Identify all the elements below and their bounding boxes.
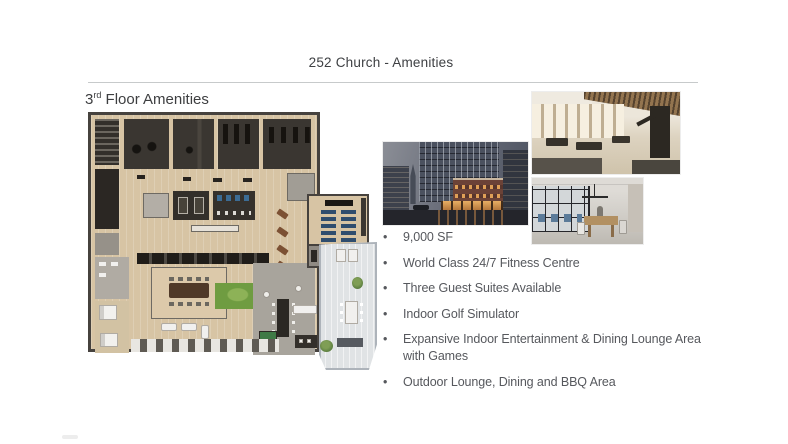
plan-equipment-dot <box>137 175 145 179</box>
bullet-text: Outdoor Lounge, Dining and BBQ Area <box>403 374 616 391</box>
bullet-icon: • <box>383 229 391 246</box>
plan-outdoor-terrace <box>319 242 377 370</box>
plan-outdoor-stools <box>360 303 363 323</box>
plan-guest-bed <box>99 305 117 320</box>
lounge-ceiling-line <box>532 184 643 185</box>
plan-theatre-room <box>307 194 369 246</box>
ext-podium-windows <box>455 194 503 198</box>
ext-car <box>413 205 429 210</box>
plan-kettlebell <box>276 244 288 255</box>
plan-small-room <box>143 193 169 218</box>
list-item: •World Class 24/7 Fitness Centre <box>383 255 703 272</box>
ext-podium-windows <box>455 185 503 189</box>
gym-bench <box>576 142 602 150</box>
plan-dining-chairs <box>169 302 209 306</box>
plan-round-table <box>295 285 302 292</box>
gym-bench <box>546 138 568 146</box>
plan-kettlebell <box>276 226 288 237</box>
amenities-list: •9,000 SF •World Class 24/7 Fitness Cent… <box>383 229 703 399</box>
plan-bar-table <box>277 299 289 337</box>
plan-fixture <box>98 272 107 278</box>
plan-round-table <box>263 291 270 298</box>
slide: 252 Church - Amenities 3rd Floor Ameniti… <box>0 0 788 444</box>
floor-plan-image <box>85 106 387 374</box>
ext-storefront <box>441 201 503 210</box>
plan-equipment-dot <box>243 178 252 182</box>
lounge-blue-chairs <box>538 214 582 222</box>
title-divider <box>88 82 698 83</box>
fitness-centre-photo <box>532 92 680 174</box>
plan-gym-room-4 <box>263 119 311 169</box>
plan-dark-hall <box>95 169 119 229</box>
plan-golf-turf <box>215 283 253 309</box>
plan-kitchen-island <box>293 305 317 314</box>
plan-main-body <box>88 112 320 352</box>
plan-gym-room-3 <box>218 119 259 169</box>
bullet-icon: • <box>383 255 391 272</box>
plan-bbq-station <box>337 338 363 347</box>
plan-dining-chairs <box>169 277 209 281</box>
plan-sofa <box>161 323 177 331</box>
plan-counter <box>191 225 239 232</box>
list-item: •Expansive Indoor Entertainment & Dining… <box>383 331 703 365</box>
bullet-text: Expansive Indoor Entertainment & Dining … <box>403 331 701 348</box>
bullet-icon: • <box>383 280 391 297</box>
lounge-pendant-light <box>582 196 608 198</box>
plan-sofa <box>181 323 197 331</box>
gym-mat <box>632 160 680 174</box>
plan-storage-room <box>95 233 119 255</box>
slide-title: 252 Church - Amenities <box>0 55 762 70</box>
plan-av-wall <box>361 198 366 236</box>
plan-locker-row <box>137 253 269 264</box>
plan-theatre-seats <box>341 210 356 244</box>
plan-bar-stools <box>272 303 275 333</box>
plan-dining-table <box>169 283 209 298</box>
plan-lounge-chair <box>336 249 346 262</box>
plan-fixture <box>307 339 311 343</box>
plan-bottom-rooms <box>131 339 279 352</box>
plan-equipment-dot <box>213 178 222 182</box>
gym-ceiling-band <box>532 92 592 104</box>
ext-right-building <box>503 150 528 214</box>
plan-stool-row <box>217 211 251 215</box>
list-item: •Outdoor Lounge, Dining and BBQ Area <box>383 374 703 391</box>
plan-outdoor-stools <box>340 303 343 323</box>
lounge-right-wall <box>628 184 643 232</box>
plan-stairs <box>95 119 119 165</box>
bullet-text: Indoor Golf Simulator <box>403 306 519 323</box>
bullet-icon: • <box>383 331 391 365</box>
bullet-text: World Class 24/7 Fitness Centre <box>403 255 580 272</box>
bullet-text: with Games <box>403 348 701 365</box>
list-item: •Three Guest Suites Available <box>383 280 703 297</box>
lounge-wood-table <box>584 216 618 225</box>
plan-guest-bed <box>100 333 118 347</box>
plan-planter <box>352 277 363 289</box>
gym-dark-floor <box>532 158 602 174</box>
plan-massage-bed <box>178 197 188 214</box>
plan-equipment-dot <box>183 177 191 181</box>
plan-fixture <box>299 339 303 343</box>
plan-screen <box>325 200 353 206</box>
bullet-icon: • <box>383 306 391 323</box>
plan-theatre-seats <box>321 210 336 244</box>
faint-watermark <box>62 435 78 439</box>
plan-fixture <box>98 261 107 267</box>
gym-window-wall <box>532 104 624 138</box>
list-item: •Indoor Golf Simulator <box>383 306 703 323</box>
lounge-pendant-wire <box>594 184 595 196</box>
list-item: •9,000 SF <box>383 229 703 246</box>
ext-street-reflection <box>438 210 508 225</box>
plan-blue-seats-row <box>217 195 251 201</box>
building-exterior-photo <box>383 142 528 225</box>
plan-kettlebell <box>276 208 288 219</box>
plan-fixture <box>110 261 119 267</box>
plan-gym-room-1 <box>124 119 169 169</box>
plan-lounge-chair <box>348 249 358 262</box>
bullet-icon: • <box>383 374 391 391</box>
plan-outdoor-island <box>345 301 358 324</box>
gym-bench <box>612 136 630 143</box>
bullet-text: 9,000 SF <box>403 229 453 246</box>
plan-planter <box>320 340 333 352</box>
plan-massage-bed <box>194 197 204 214</box>
bullet-text: Three Guest Suites Available <box>403 280 561 297</box>
plan-gym-room-2 <box>173 119 214 169</box>
plan-sofa <box>201 325 209 339</box>
